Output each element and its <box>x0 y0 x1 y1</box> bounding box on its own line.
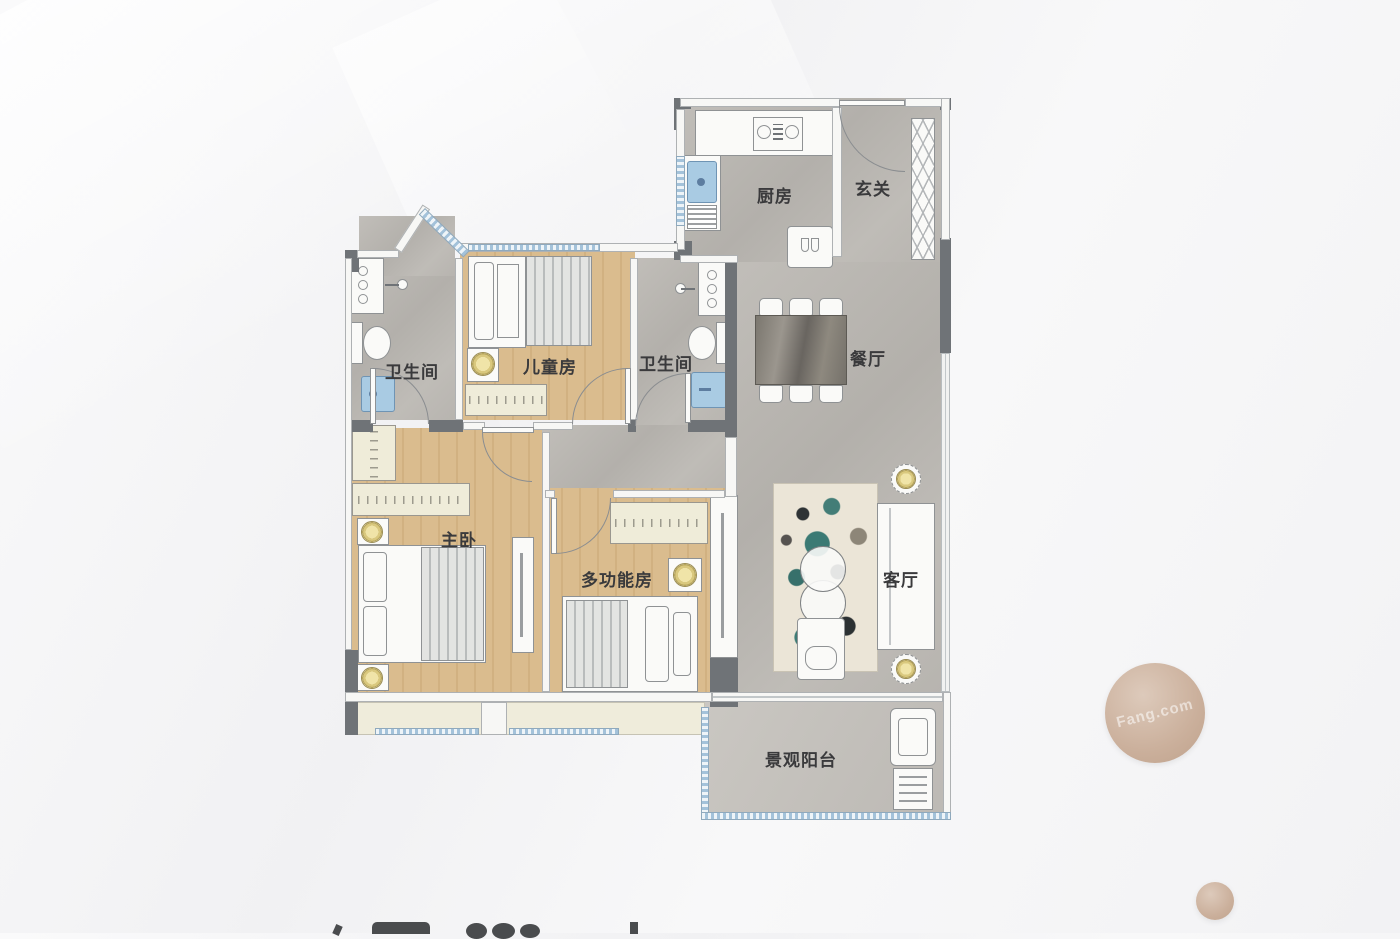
wall-segment <box>680 255 738 263</box>
burner-icon <box>785 125 799 139</box>
master-bed-blanket <box>421 547 484 661</box>
children-bed-mattress <box>497 264 519 338</box>
master-lamp <box>361 521 383 543</box>
cooktop-grill-icon <box>773 124 783 140</box>
room-label-master: 主卧 <box>441 526 477 551</box>
window-strip <box>676 156 685 226</box>
dining-table <box>755 315 847 385</box>
dining-chair <box>819 298 843 316</box>
wall-segment <box>688 420 737 432</box>
dining-chair <box>789 385 813 403</box>
master-bed-pillow <box>363 606 387 656</box>
cutoff-glyph <box>492 923 515 939</box>
master-tv-cabinet <box>512 537 534 653</box>
vanity-basin-icon <box>358 266 368 276</box>
dining-chair <box>759 298 783 316</box>
dining-chair <box>759 385 783 403</box>
master-dresser <box>352 483 470 516</box>
cutoff-glyph <box>630 922 638 934</box>
living-tv-cabinet <box>710 495 738 658</box>
watermark-circle-small <box>1196 882 1234 920</box>
refrigerator <box>787 226 833 268</box>
room-label-multi: 多功能房 <box>581 566 653 591</box>
coffee-table <box>800 546 846 592</box>
master-lamp <box>361 667 383 689</box>
room-label-dining: 餐厅 <box>850 345 886 370</box>
dining-chair <box>789 298 813 316</box>
living-armchair-cushion <box>805 646 837 670</box>
floor-plan: 厨房 玄关 卫生间 儿童房 卫生间 餐厅 主卧 多功能房 客厅 景观阳台 <box>345 98 956 822</box>
balcony-sliding-door <box>712 692 943 702</box>
cutoff-glyph <box>332 924 342 936</box>
watermark-text: Fang.com <box>1104 693 1205 734</box>
living-side-table-tray <box>896 469 916 489</box>
children-wardrobe <box>526 256 592 346</box>
bay-pillar <box>481 702 507 735</box>
window-strip <box>468 244 600 251</box>
burner-icon <box>757 125 771 139</box>
refrigerator-icon <box>801 238 809 252</box>
children-bed-pillow <box>474 262 494 340</box>
vanity-basin-icon <box>707 284 717 294</box>
balcony-glass <box>701 707 709 814</box>
room-label-kitchen: 厨房 <box>757 182 793 207</box>
room-label-children: 儿童房 <box>523 353 577 378</box>
room-label-foyer: 玄关 <box>855 175 891 200</box>
wall-segment <box>542 432 550 692</box>
wall-segment <box>941 98 950 240</box>
balcony-cabinet-lines <box>899 776 927 802</box>
kitchen-drawer-unit <box>687 205 717 229</box>
vanity-basin-icon <box>707 270 717 280</box>
master-bed-pillow <box>363 552 387 602</box>
wall-segment <box>345 650 358 696</box>
cutoff-glyph <box>372 922 430 934</box>
window-strip <box>509 728 619 735</box>
watermark-circle-large: Fang.com <box>1105 663 1205 763</box>
vanity-basin-icon <box>707 298 717 308</box>
wall-segment <box>455 258 463 420</box>
children-stool <box>471 352 495 376</box>
children-desk <box>465 384 547 416</box>
page-background: { "floorplan": { "rooms": { "kitchen": {… <box>0 0 1400 933</box>
cutoff-glyph <box>520 924 540 938</box>
multi-desk <box>610 502 708 544</box>
wall-segment <box>725 255 737 437</box>
wall-segment <box>357 250 399 258</box>
shower-drain-icon <box>699 388 711 391</box>
window-glass-wall <box>941 353 950 692</box>
wall-segment <box>345 258 352 650</box>
wall-segment <box>725 437 737 497</box>
multi-bed-blanket <box>566 600 628 688</box>
toilet-bowl <box>363 326 391 360</box>
wall-segment <box>940 238 951 353</box>
wall-segment <box>545 490 555 498</box>
room-label-bath2: 卫生间 <box>639 350 693 375</box>
corridor-floor <box>540 425 732 490</box>
wall-segment <box>533 422 573 430</box>
dining-chair <box>819 385 843 403</box>
room-label-bath1: 卫生间 <box>385 358 439 383</box>
multi-lamp <box>673 563 697 587</box>
wall-segment <box>832 107 842 257</box>
room-label-balcony: 景观阳台 <box>765 746 837 771</box>
wall-segment <box>613 490 725 498</box>
faucet-icon <box>385 284 399 286</box>
wall-segment <box>345 692 712 702</box>
cutoff-glyph <box>466 923 487 939</box>
faucet-icon <box>681 288 695 290</box>
multi-bed-pillow <box>645 606 669 682</box>
refrigerator-icon <box>811 238 819 252</box>
wall-segment <box>429 420 463 432</box>
living-tv-icon <box>721 513 724 638</box>
window-strip <box>375 728 479 735</box>
sink-drain-icon <box>697 178 705 186</box>
wall-segment <box>905 98 943 107</box>
vanity-basin-icon <box>358 280 368 290</box>
multi-bed-pillow <box>673 612 691 676</box>
vanity-basin-icon <box>358 294 368 304</box>
wall-segment <box>680 98 840 107</box>
foyer-shoe-cabinet <box>911 118 935 260</box>
wall-segment <box>630 258 638 420</box>
room-label-living: 客厅 <box>883 566 919 591</box>
washing-machine-door <box>898 718 928 756</box>
master-tv-icon <box>520 553 523 637</box>
balcony-glass <box>701 812 951 820</box>
master-wardrobe <box>352 425 396 481</box>
living-side-table-tray <box>896 659 916 679</box>
wall-segment <box>943 692 951 820</box>
